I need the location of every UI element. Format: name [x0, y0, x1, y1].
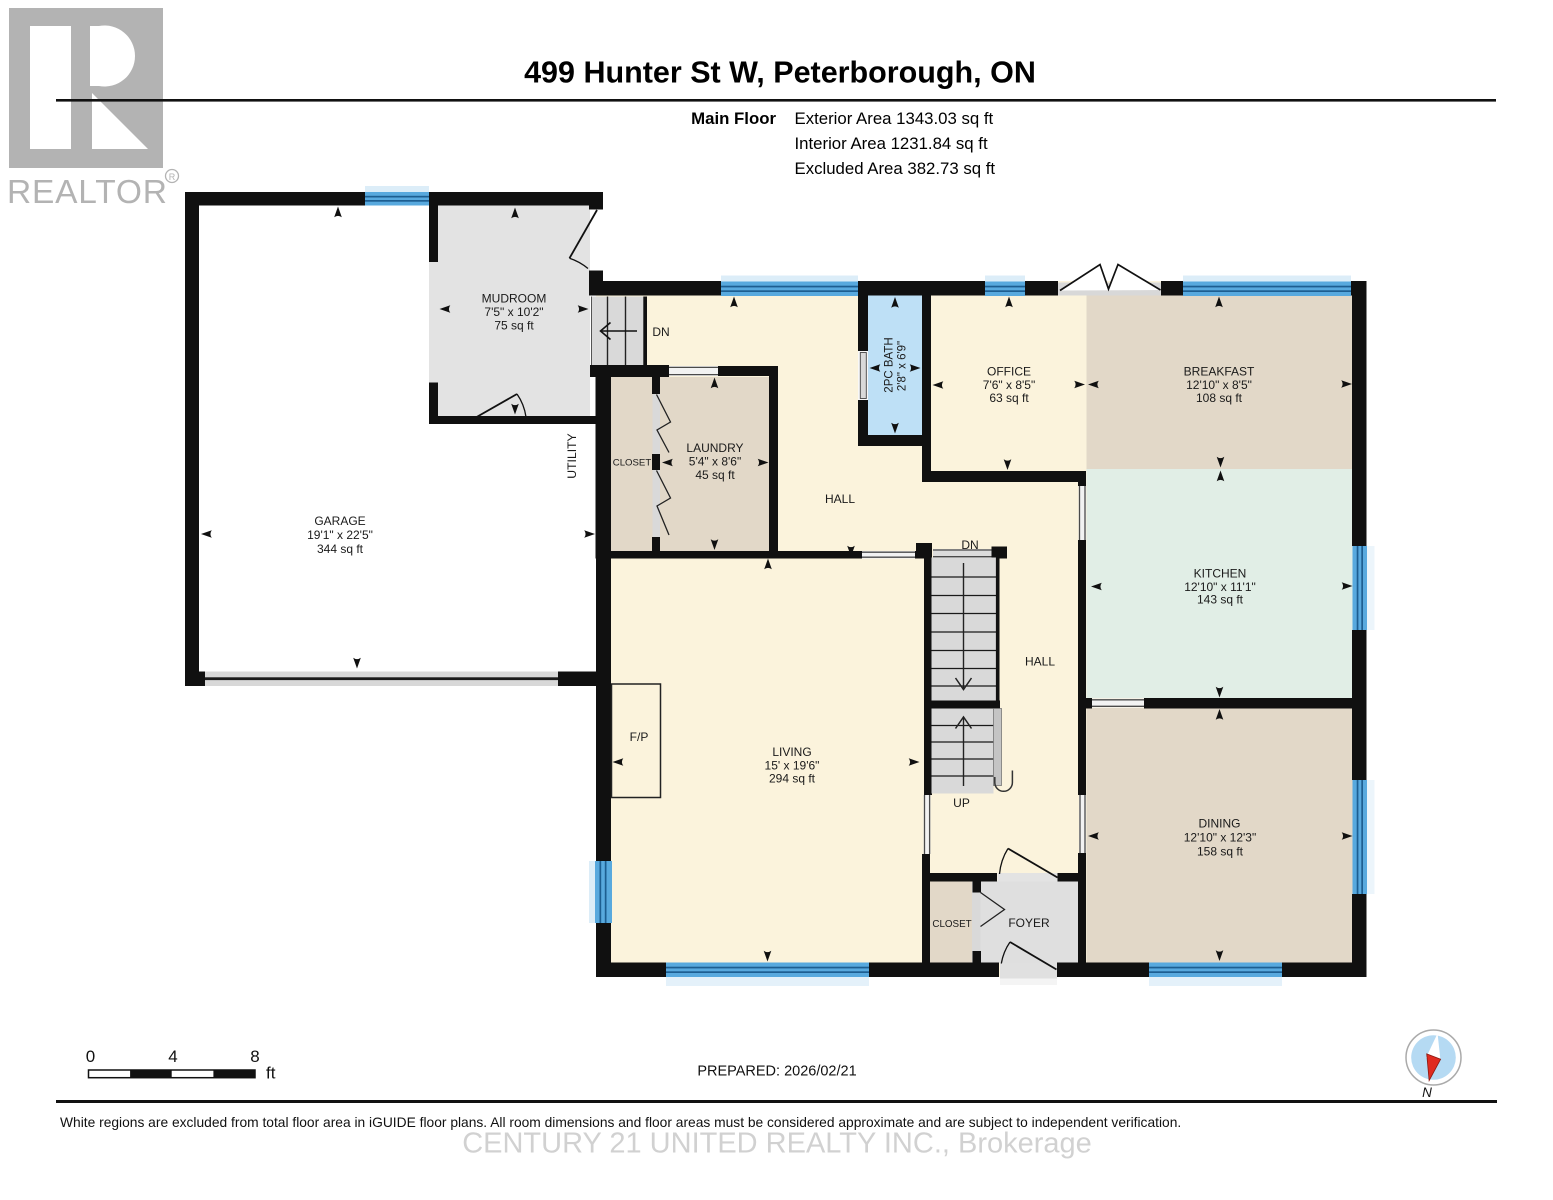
svg-text:2PC BATH: 2PC BATH	[884, 337, 896, 392]
svg-text:LAUNDRY: LAUNDRY	[686, 441, 743, 455]
svg-text:63 sq ft: 63 sq ft	[989, 391, 1029, 405]
svg-text:LIVING: LIVING	[772, 745, 811, 759]
svg-text:75 sq ft: 75 sq ft	[494, 318, 534, 332]
svg-text:2'8" x 6'9": 2'8" x 6'9"	[897, 341, 909, 391]
svg-text:Exterior Area 1343.03 sq ft: Exterior Area 1343.03 sq ft	[795, 109, 994, 128]
svg-text:19'1" x 22'5": 19'1" x 22'5"	[307, 528, 373, 542]
svg-text:8: 8	[250, 1047, 259, 1066]
svg-text:UP: UP	[953, 796, 970, 810]
svg-text:CLOSET: CLOSET	[613, 457, 652, 468]
svg-text:294 sq ft: 294 sq ft	[769, 772, 816, 786]
svg-text:CENTURY 21 UNITED REALTY INC.,: CENTURY 21 UNITED REALTY INC., Brokerage	[462, 1128, 1092, 1160]
svg-text:PREPARED: 2026/02/21: PREPARED: 2026/02/21	[697, 1064, 856, 1080]
svg-text:108 sq ft: 108 sq ft	[1196, 391, 1243, 405]
svg-text:15' x 19'6": 15' x 19'6"	[765, 758, 820, 772]
svg-text:12'10" x 12'3": 12'10" x 12'3"	[1184, 831, 1257, 845]
svg-text:REALTOR: REALTOR	[7, 174, 168, 211]
svg-text:Interior Area 1231.84 sq ft: Interior Area 1231.84 sq ft	[795, 134, 988, 153]
svg-text:143 sq ft: 143 sq ft	[1197, 592, 1244, 606]
svg-text:BREAKFAST: BREAKFAST	[1184, 365, 1255, 379]
svg-text:HALL: HALL	[825, 492, 855, 506]
svg-text:GARAGE: GARAGE	[314, 514, 365, 528]
svg-text:499 Hunter St W, Peterborough,: 499 Hunter St W, Peterborough, ON	[524, 56, 1036, 90]
svg-text:ft: ft	[266, 1064, 276, 1083]
svg-text:KITCHEN: KITCHEN	[1194, 567, 1247, 581]
svg-text:4: 4	[168, 1047, 177, 1066]
svg-text:Main Floor: Main Floor	[691, 109, 776, 128]
svg-text:N: N	[1422, 1085, 1432, 1100]
svg-text:HALL: HALL	[1025, 654, 1055, 668]
svg-text:Excluded Area 382.73 sq ft: Excluded Area 382.73 sq ft	[795, 159, 996, 178]
svg-text:CLOSET: CLOSET	[932, 919, 971, 930]
svg-text:7'5" x 10'2": 7'5" x 10'2"	[484, 305, 543, 319]
svg-text:DN: DN	[961, 538, 978, 552]
svg-text:45 sq ft: 45 sq ft	[695, 468, 735, 482]
svg-text:DN: DN	[652, 325, 669, 339]
svg-text:R: R	[169, 172, 176, 182]
svg-text:158 sq ft: 158 sq ft	[1197, 844, 1244, 858]
svg-text:344 sq ft: 344 sq ft	[317, 542, 364, 556]
svg-text:F/P: F/P	[630, 730, 649, 744]
svg-text:FOYER: FOYER	[1008, 916, 1050, 930]
svg-text:DINING: DINING	[1199, 817, 1241, 831]
svg-text:OFFICE: OFFICE	[987, 365, 1031, 379]
svg-text:5'4" x 8'6": 5'4" x 8'6"	[689, 455, 741, 469]
svg-text:UTILITY: UTILITY	[565, 433, 579, 478]
svg-text:0: 0	[86, 1047, 95, 1066]
svg-text:MUDROOM: MUDROOM	[482, 292, 547, 306]
